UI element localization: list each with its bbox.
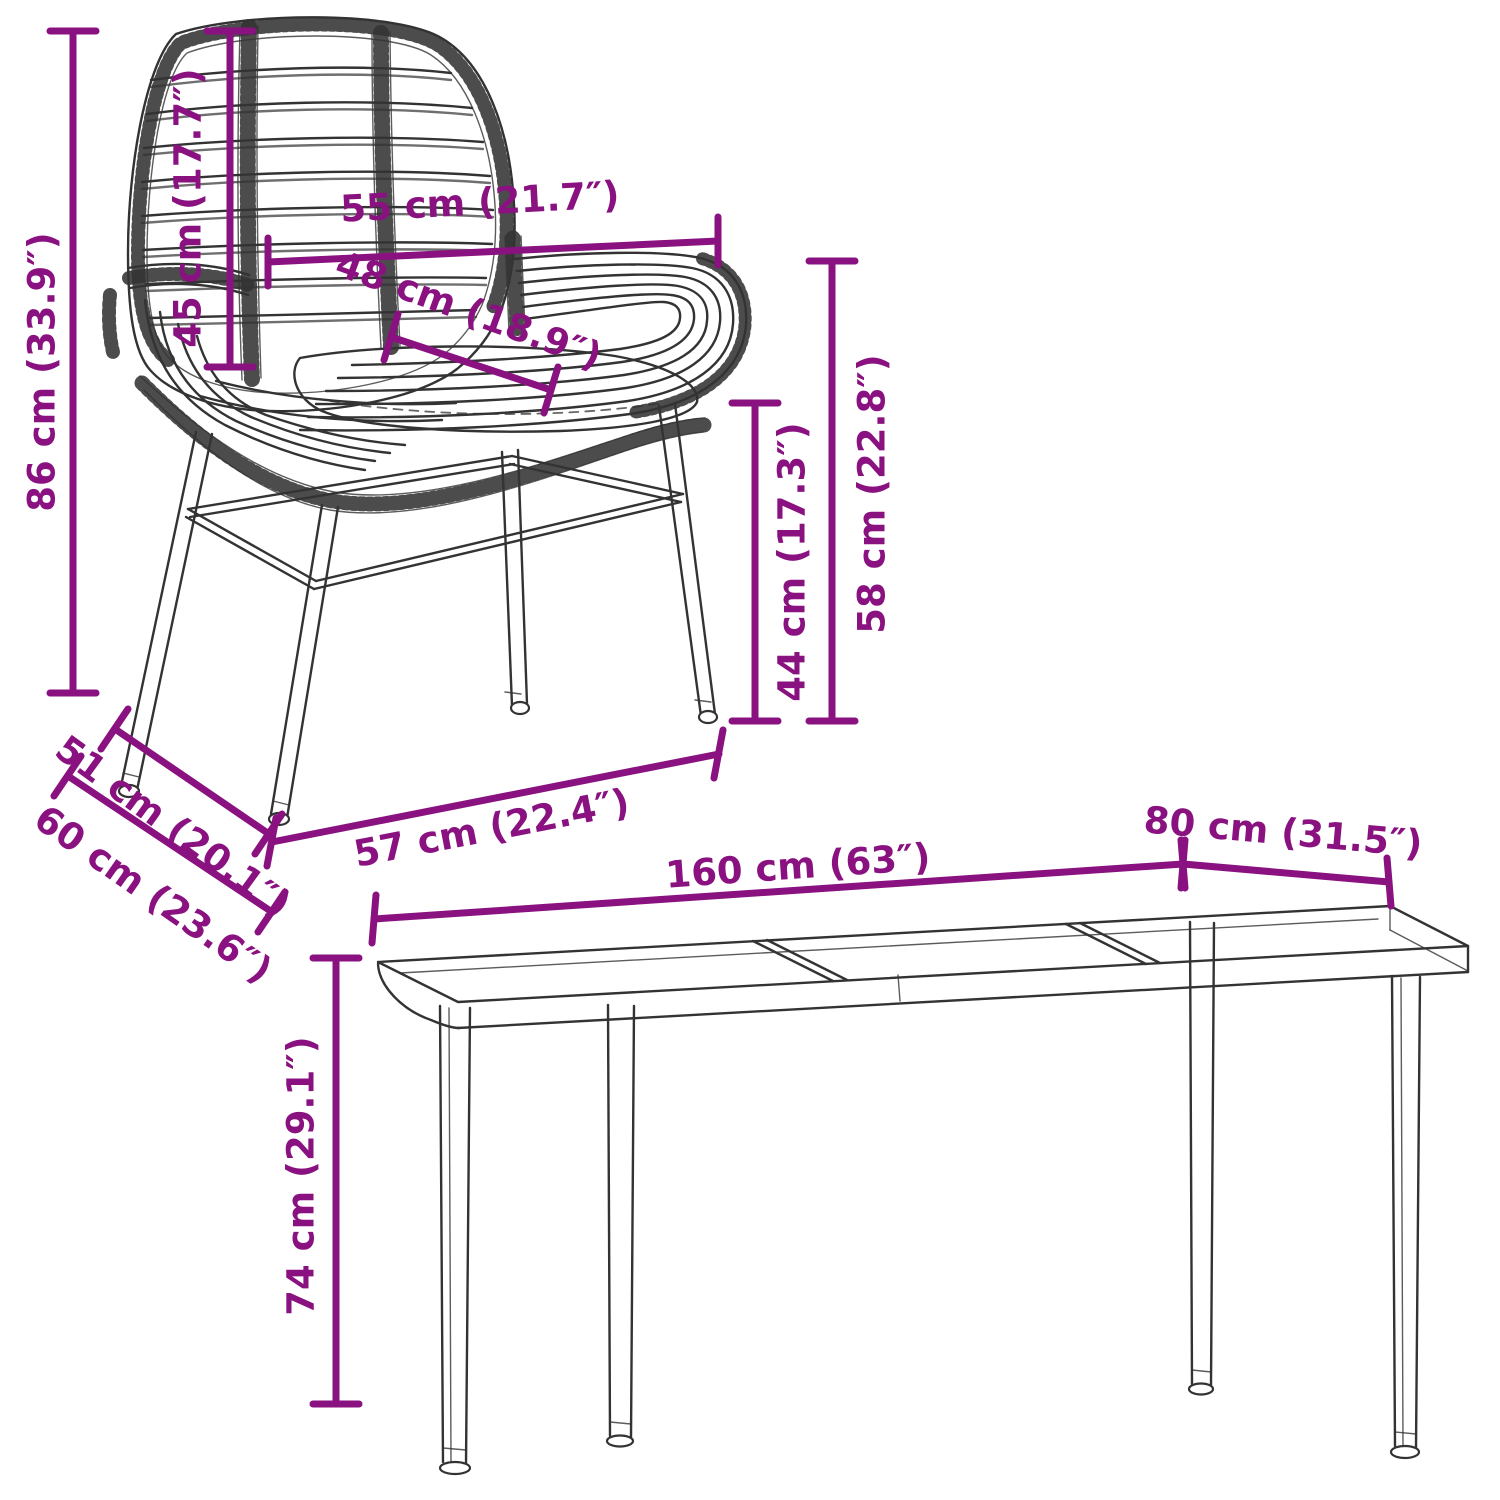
table-apron	[378, 906, 1468, 1028]
chair-seat-height-label: 44 cm (17.3″)	[771, 422, 814, 701]
dimension-table-length: 160 cm (63″)	[372, 835, 1185, 943]
dimension-chair-armrest-height: 58 cm (22.8″)	[809, 261, 894, 721]
dimension-chair-seat-height: 44 cm (17.3″)	[732, 403, 814, 721]
dimension-table-width: 80 cm (31.5″)	[1142, 798, 1424, 906]
chair-base-width-label: 57 cm (22.4″)	[350, 780, 632, 876]
dimension-chair-base-width: 57 cm (22.4″)	[267, 730, 723, 876]
chair-basket-rim	[140, 376, 705, 513]
product-dimension-diagram: 86 cm (33.9″) 45 cm (17.7″) 55 cm (21.7″…	[0, 0, 1500, 1500]
table-legs	[440, 922, 1420, 1474]
table-top	[378, 906, 1468, 1002]
dimension-table-height: 74 cm (29.1″)	[280, 958, 360, 1404]
chair-backrest-height-label: 45 cm (17.7″)	[167, 68, 210, 347]
dimension-chair-overall-height: 86 cm (33.9″)	[21, 31, 97, 693]
table-height-label: 74 cm (29.1″)	[280, 1036, 323, 1315]
dimension-annotations: 86 cm (33.9″) 45 cm (17.7″) 55 cm (21.7″…	[21, 31, 1425, 1404]
diagram-canvas: 86 cm (33.9″) 45 cm (17.7″) 55 cm (21.7″…	[0, 0, 1500, 1500]
table-length-label: 160 cm (63″)	[664, 835, 932, 896]
chair-legs	[119, 404, 717, 825]
chair-overall-height-label: 86 cm (33.9″)	[21, 232, 64, 511]
table-illustration	[378, 906, 1468, 1474]
chair-armrest-height-label: 58 cm (22.8″)	[851, 354, 894, 633]
